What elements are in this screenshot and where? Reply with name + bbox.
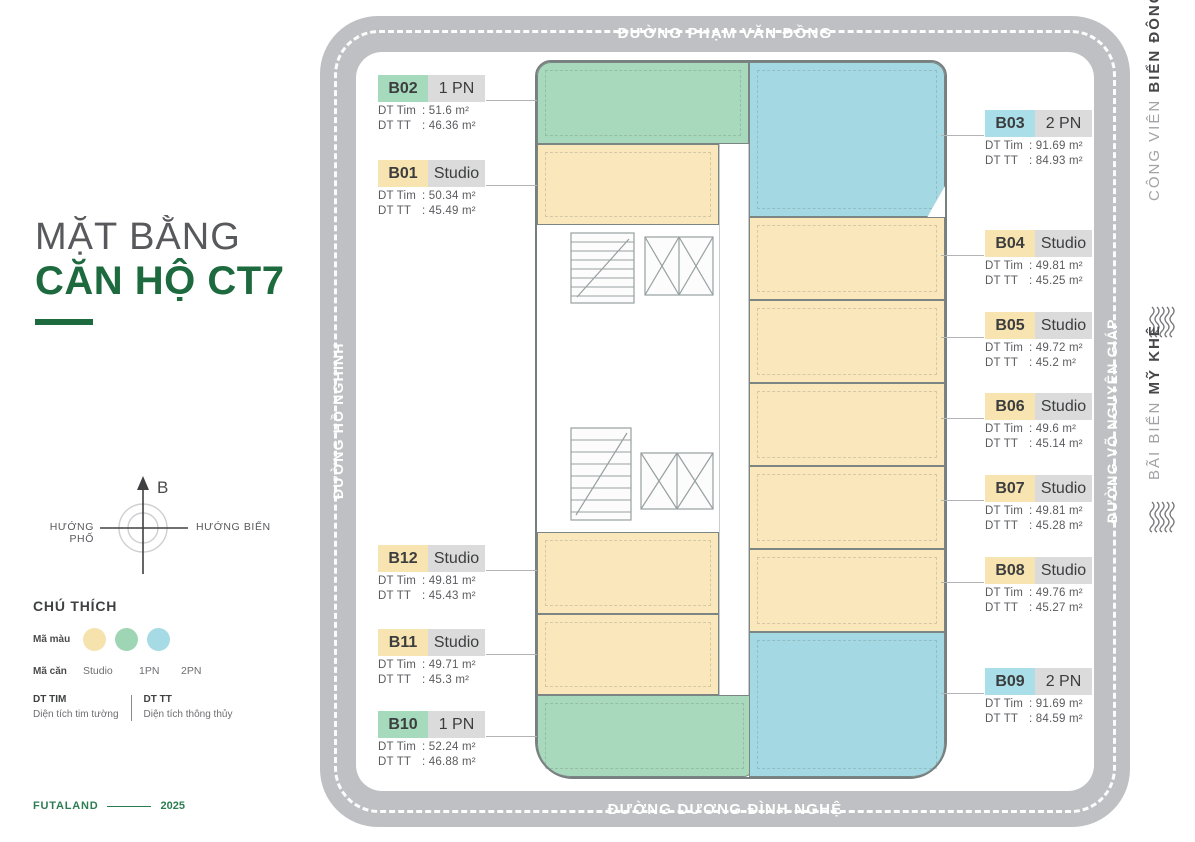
dt-tim-value: : 50.34 m² <box>422 190 476 202</box>
leader-line-b01 <box>486 185 537 186</box>
legend-definitions: DT TIM Diện tích tim tường DT TT Diện tí… <box>33 693 283 722</box>
leader-line-b12 <box>486 570 537 571</box>
page-title-line2: CĂN HỘ CT7 <box>35 259 284 304</box>
dt-tim-value: : 51.6 m² <box>422 105 469 117</box>
unit-type-badge: 1 PN <box>428 75 485 102</box>
dt-tt-key: DT TT <box>985 602 1029 614</box>
legend: CHÚ THÍCH Mã màu Mã căn Studio 1PN 2PN D… <box>33 598 283 722</box>
corridor-wall-right <box>748 144 749 695</box>
dt-tim-value: : 49.72 m² <box>1029 342 1083 354</box>
unit-region-b06 <box>749 383 945 466</box>
compass-icon <box>96 466 196 581</box>
unit-type-badge: 2 PN <box>1035 110 1092 137</box>
dt-tt-key: DT TT <box>378 756 422 768</box>
brand-name: FUTALAND <box>33 800 98 812</box>
dt-tim-key: DT Tim <box>378 741 422 753</box>
page-title-line1: MẶT BẰNG <box>35 216 284 259</box>
unit-code-badge: B08 <box>985 557 1035 584</box>
unit-region-b05 <box>749 300 945 383</box>
unit-code-badge: B09 <box>985 668 1035 695</box>
unit-code-badge: B02 <box>378 75 428 102</box>
unit-code-badge: B03 <box>985 110 1035 137</box>
dt-tt-value: : 46.36 m² <box>422 120 476 132</box>
unit-card-b01: B01Studio DT Tim: 50.34 m² DT TT: 45.49 … <box>378 160 490 217</box>
title-underline <box>35 319 93 325</box>
dt-tt-key: DT TT <box>378 120 422 132</box>
dt-tt-value: : 45.27 m² <box>1029 602 1083 614</box>
unit-region-b01 <box>537 144 719 225</box>
unit-card-b05: B05Studio DT Tim: 49.72 m² DT TT: 45.2 m… <box>985 312 1097 369</box>
dt-tt-key: DT TT <box>378 590 422 602</box>
unit-card-b12: B12Studio DT Tim: 49.81 m² DT TT: 45.43 … <box>378 545 490 602</box>
unit-type-badge: Studio <box>1035 230 1092 257</box>
unit-type-badge: Studio <box>1035 557 1092 584</box>
unit-type-badge: Studio <box>428 160 485 187</box>
leader-line-b11 <box>486 654 537 655</box>
dt-tt-key: DT TT <box>985 520 1029 532</box>
dt-tim-value: : 49.81 m² <box>1029 505 1083 517</box>
dt-tt-value: : 45.28 m² <box>1029 520 1083 532</box>
dt-tt-value: : 45.14 m² <box>1029 438 1083 450</box>
studio-color-swatch <box>83 628 106 651</box>
dt-tim-label: DT TIM <box>33 694 66 705</box>
legend-color-row: Mã màu <box>33 628 283 651</box>
legend-type-1pn: 1PN <box>139 665 167 677</box>
unit-card-b07: B07Studio DT Tim: 49.81 m² DT TT: 45.28 … <box>985 475 1097 532</box>
dt-tim-key: DT Tim <box>985 140 1029 152</box>
core-stairs-elevators <box>539 225 719 532</box>
unit-card-b02: B021 PN DT Tim: 51.6 m² DT TT: 46.36 m² <box>378 75 490 132</box>
unit-region-b07 <box>749 466 945 549</box>
unit-region-b02 <box>537 62 749 144</box>
leader-line-b04 <box>941 255 984 256</box>
unit-type-badge: Studio <box>1035 393 1092 420</box>
dt-tim-key: DT Tim <box>985 260 1029 272</box>
unit-region-b12 <box>537 532 719 614</box>
dt-tim-key: DT Tim <box>378 105 422 117</box>
dt-tim-value: : 52.24 m² <box>422 741 476 753</box>
legend-type-row: Mã căn Studio 1PN 2PN <box>33 665 283 677</box>
dt-tt-value: : 45.2 m² <box>1029 357 1076 369</box>
dt-tim-key: DT Tim <box>985 587 1029 599</box>
park-label: CÔNG VIÊN BIỂN ĐÔNG <box>1146 26 1163 201</box>
beach-prefix: BÃI BIỂN <box>1146 394 1163 480</box>
dt-tt-desc: Diện tích thông thủy <box>144 709 233 720</box>
page-title: MẶT BẰNG CĂN HỘ CT7 <box>35 216 284 325</box>
brochure-page: MẶT BẰNG CĂN HỘ CT7 B HƯỚNG PHỐ HƯỚNG BI… <box>0 0 1195 842</box>
dt-tt-label: DT TT <box>144 694 172 705</box>
dt-tim-key: DT Tim <box>378 190 422 202</box>
unit-card-b09: B092 PN DT Tim: 91.69 m² DT TT: 84.59 m² <box>985 668 1097 725</box>
unit-type-badge: Studio <box>428 545 485 572</box>
park-name: BIỂN ĐÔNG <box>1146 0 1163 93</box>
footer-rule <box>107 806 151 807</box>
unit-card-b08: B08Studio DT Tim: 49.76 m² DT TT: 45.27 … <box>985 557 1097 614</box>
dt-tim-value: : 49.81 m² <box>422 575 476 587</box>
leader-line-b02 <box>486 100 537 101</box>
unit-type-badge: 1 PN <box>428 711 485 738</box>
compass-street-side-label: HƯỚNG PHỐ <box>28 521 94 545</box>
unit-region-b09 <box>749 632 945 777</box>
unit-card-b04: B04Studio DT Tim: 49.81 m² DT TT: 45.25 … <box>985 230 1097 287</box>
street-name-top: ĐƯỜNG PHẠM VĂN ĐỒNG <box>320 25 1130 42</box>
dt-tt-value: : 84.93 m² <box>1029 155 1083 167</box>
legend-type-studio: Studio <box>83 665 125 677</box>
legend-color-row-label: Mã màu <box>33 634 83 645</box>
unit-region-b11 <box>537 614 719 695</box>
street-name-bottom: ĐƯỜNG DƯƠNG ĐÌNH NGHỆ <box>320 801 1130 818</box>
legend-type-row-label: Mã căn <box>33 666 83 677</box>
unit-code-badge: B05 <box>985 312 1035 339</box>
street-name-left: ĐƯỜNG HỒ NGHINH <box>320 16 356 826</box>
one-bedroom-color-swatch <box>115 628 138 651</box>
footer: FUTALAND 2025 <box>33 800 185 812</box>
unit-type-badge: 2 PN <box>1035 668 1092 695</box>
dt-tt-value: : 45.49 m² <box>422 205 476 217</box>
dt-tim-desc: Diện tích tim tường <box>33 709 119 720</box>
unit-region-b03 <box>749 62 945 217</box>
waves-icon <box>1149 500 1175 534</box>
dt-tim-key: DT Tim <box>985 698 1029 710</box>
dt-tim-key: DT Tim <box>985 505 1029 517</box>
unit-card-b03: B032 PN DT Tim: 91.69 m² DT TT: 84.93 m² <box>985 110 1097 167</box>
unit-code-badge: B11 <box>378 629 428 656</box>
dt-tim-key: DT Tim <box>985 423 1029 435</box>
dt-tt-key: DT TT <box>378 674 422 686</box>
dt-tt-value: : 46.88 m² <box>422 756 476 768</box>
unit-code-badge: B04 <box>985 230 1035 257</box>
dt-tim-definition: DT TIM Diện tích tim tường <box>33 693 119 722</box>
dt-tim-value: : 49.81 m² <box>1029 260 1083 272</box>
dt-tt-key: DT TT <box>985 713 1029 725</box>
unit-type-badge: Studio <box>1035 475 1092 502</box>
dt-tim-value: : 91.69 m² <box>1029 140 1083 152</box>
dt-tt-value: : 45.43 m² <box>422 590 476 602</box>
two-bedroom-color-swatch <box>147 628 170 651</box>
dt-tt-key: DT TT <box>985 438 1029 450</box>
dt-tt-value: : 45.25 m² <box>1029 275 1083 287</box>
dt-tt-value: : 45.3 m² <box>422 674 469 686</box>
dt-tim-value: : 49.71 m² <box>422 659 476 671</box>
unit-code-badge: B01 <box>378 160 428 187</box>
unit-code-badge: B10 <box>378 711 428 738</box>
park-prefix: CÔNG VIÊN <box>1146 93 1163 201</box>
dt-tt-key: DT TT <box>985 275 1029 287</box>
legend-divider <box>131 695 132 721</box>
leader-line-b06 <box>941 418 984 419</box>
beach-name: MỸ KHÊ <box>1146 324 1163 394</box>
dt-tt-value: : 84.59 m² <box>1029 713 1083 725</box>
dt-tim-key: DT Tim <box>378 659 422 671</box>
dt-tim-key: DT Tim <box>378 575 422 587</box>
dt-tim-value: : 91.69 m² <box>1029 698 1083 710</box>
legend-heading: CHÚ THÍCH <box>33 598 283 614</box>
leader-line-b08 <box>941 582 984 583</box>
dt-tt-key: DT TT <box>985 155 1029 167</box>
leader-line-b10 <box>486 736 537 737</box>
unit-code-badge: B07 <box>985 475 1035 502</box>
dt-tt-key: DT TT <box>985 357 1029 369</box>
footer-year: 2025 <box>160 800 184 812</box>
unit-region-b08 <box>749 549 945 632</box>
floor-plan <box>535 60 947 779</box>
unit-region-b10 <box>537 695 752 777</box>
dt-tim-value: : 49.76 m² <box>1029 587 1083 599</box>
dt-tim-value: : 49.6 m² <box>1029 423 1076 435</box>
unit-card-b11: B11Studio DT Tim: 49.71 m² DT TT: 45.3 m… <box>378 629 490 686</box>
compass-north-label: B <box>157 478 168 498</box>
street-name-right: ĐƯỜNG VÕ NGUYÊN GIÁP <box>1094 16 1130 826</box>
dt-tim-key: DT Tim <box>985 342 1029 354</box>
beach-label: BÃI BIỂN MỸ KHÊ <box>1146 350 1163 480</box>
leader-line-b07 <box>941 500 984 501</box>
dt-tt-key: DT TT <box>378 205 422 217</box>
unit-region-b04 <box>749 217 945 300</box>
unit-card-b10: B101 PN DT Tim: 52.24 m² DT TT: 46.88 m² <box>378 711 490 768</box>
unit-type-badge: Studio <box>1035 312 1092 339</box>
unit-type-badge: Studio <box>428 629 485 656</box>
corridor-wall-left <box>719 144 720 695</box>
leader-line-b09 <box>941 693 984 694</box>
unit-card-b06: B06Studio DT Tim: 49.6 m² DT TT: 45.14 m… <box>985 393 1097 450</box>
leader-line-b05 <box>941 337 984 338</box>
leader-line-b03 <box>941 135 984 136</box>
compass-sea-side-label: HƯỚNG BIỂN <box>196 521 271 533</box>
unit-code-badge: B06 <box>985 393 1035 420</box>
legend-type-2pn: 2PN <box>181 665 201 677</box>
unit-code-badge: B12 <box>378 545 428 572</box>
dt-tt-definition: DT TT Diện tích thông thủy <box>144 693 233 722</box>
